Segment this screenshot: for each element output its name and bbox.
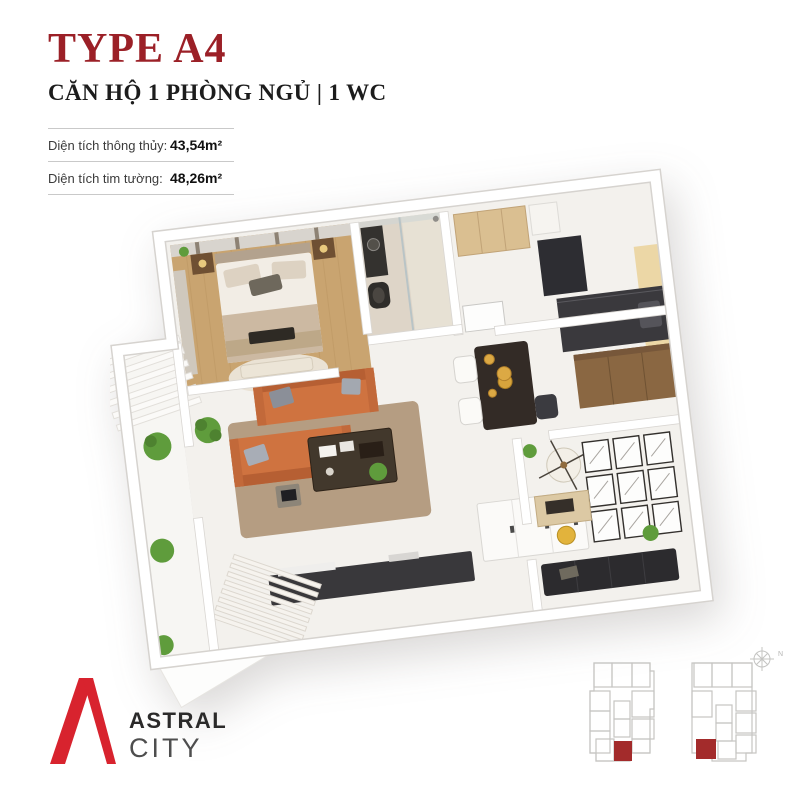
unit <box>716 723 732 741</box>
unit <box>716 705 732 723</box>
desk-chair <box>556 525 576 545</box>
unit <box>590 731 610 753</box>
compass-icon <box>748 645 776 673</box>
sofa-back <box>252 368 374 394</box>
sofa-base <box>252 368 378 427</box>
living-room <box>190 363 432 543</box>
sofa-arm <box>252 381 266 426</box>
tray <box>359 441 385 459</box>
page-header: TYPE A4 CĂN HỘ 1 PHÒNG NGỦ | 1 WC <box>48 26 387 106</box>
pendant-light <box>484 354 495 365</box>
unit <box>694 663 712 687</box>
desk <box>534 490 591 526</box>
fan-hub <box>560 461 568 469</box>
unit <box>718 741 736 759</box>
refrigerator <box>537 235 587 296</box>
logo-brand-subname: CITY <box>129 734 227 762</box>
keyplan-tower-left <box>584 657 660 773</box>
living-rug <box>227 400 432 539</box>
picture-frame-grid <box>582 432 682 542</box>
sofa-pillow <box>341 378 361 395</box>
spec-row-net-area: Diện tích thông thủy: 43,54m² <box>48 128 234 161</box>
balcony <box>110 322 329 669</box>
lamp <box>319 244 328 253</box>
fruit-bowl <box>497 374 513 390</box>
wall-slat <box>195 242 200 254</box>
sideboard-door-line <box>608 357 614 405</box>
astral-city-logo: ASTRAL CITY <box>50 678 227 764</box>
highlighted-unit-a4 <box>614 741 632 761</box>
lamp <box>198 259 207 268</box>
balcony-plant <box>142 431 173 462</box>
headboard <box>214 242 311 264</box>
bedroom-accent-wall <box>170 223 355 257</box>
vanity <box>360 225 388 277</box>
kitchen-sink <box>638 300 663 328</box>
plant <box>178 246 189 257</box>
cabinet-handle <box>545 521 550 528</box>
unit <box>736 713 756 733</box>
unit <box>632 691 654 717</box>
soundbar <box>277 562 336 577</box>
spec-row-gross-area: Diện tích tim tường: 48,26m² <box>48 161 234 195</box>
blanket <box>222 304 323 363</box>
shower-floor <box>401 212 457 336</box>
balcony-floor <box>117 344 210 663</box>
side-table <box>275 483 302 508</box>
unit <box>594 663 612 687</box>
kitchen <box>556 285 682 410</box>
pendant-light <box>488 389 497 398</box>
cabinet-handle <box>573 518 578 525</box>
toilet <box>367 281 391 309</box>
astral-logo-icon <box>50 678 116 764</box>
exterior-wall <box>110 176 707 663</box>
apartment-floor <box>159 176 707 657</box>
spec-value: 48,26m² <box>170 170 222 186</box>
media-device <box>388 551 419 562</box>
pillow <box>223 263 262 288</box>
sofa-back <box>234 461 356 487</box>
plant-leaf <box>194 418 207 431</box>
workspace <box>522 426 688 597</box>
bench-pillow <box>559 565 579 580</box>
sofa-pillow <box>269 386 295 408</box>
sofa-arm <box>341 425 356 474</box>
bench-seam <box>608 556 612 588</box>
sofa-pillow <box>243 443 269 466</box>
dining-chair-dark <box>534 393 559 420</box>
fan-blade <box>538 465 565 478</box>
wall-slat <box>235 237 240 249</box>
plant <box>522 443 538 459</box>
table-plant <box>368 462 388 482</box>
mattress <box>216 252 323 363</box>
wall <box>527 559 543 617</box>
wall <box>187 368 339 395</box>
counter-edge <box>557 289 669 303</box>
plant-leaf <box>144 435 157 448</box>
tv-wall <box>262 491 591 606</box>
spec-value: 43,54m² <box>170 137 222 153</box>
wall-slat <box>274 232 279 244</box>
sofa <box>252 368 378 427</box>
area-specs-table: Diện tích thông thủy: 43,54m² Diện tích … <box>48 128 234 195</box>
wall <box>494 305 672 336</box>
compass-north-label: N <box>778 651 783 658</box>
wall <box>512 438 531 524</box>
sofa <box>229 425 356 488</box>
entrance-hall <box>453 190 679 398</box>
shower-head <box>432 215 439 222</box>
cabinet-handle <box>510 526 515 533</box>
coffee-table <box>308 428 398 492</box>
unit <box>736 691 756 711</box>
spec-label: Diện tích tim tường: <box>48 171 170 186</box>
shoe-cabinet <box>529 202 560 235</box>
throw-blanket <box>225 330 322 358</box>
page-title: TYPE A4 <box>48 26 387 72</box>
fan-blade <box>564 464 577 491</box>
exterior-wall-edge <box>110 176 707 663</box>
kitchen-counter <box>556 285 675 352</box>
wardrobe-door-line <box>477 212 482 254</box>
cabinet-door-line <box>546 495 553 553</box>
floorplan-3d-render <box>110 163 754 728</box>
wall <box>548 414 685 440</box>
pergola-slats <box>110 335 202 431</box>
wall <box>350 222 373 334</box>
spec-label: Diện tích thông thủy: <box>48 138 170 153</box>
nightstand <box>311 237 335 260</box>
wood-plank-lines <box>185 225 352 390</box>
laptop <box>281 489 297 502</box>
bench-sofa <box>541 548 680 596</box>
logo-text: ASTRAL CITY <box>129 709 227 764</box>
bench-seam <box>574 560 578 592</box>
bed-bench <box>240 357 313 379</box>
highlighted-unit-a4 <box>696 739 716 759</box>
accent-pillow <box>248 273 283 296</box>
wall <box>439 211 463 335</box>
bed-tray <box>248 327 295 345</box>
unit <box>736 735 756 753</box>
tv-console <box>268 551 475 606</box>
fan-blade <box>563 452 590 465</box>
interior-walls <box>160 186 707 657</box>
unit <box>632 663 650 687</box>
sofa-base <box>229 425 356 488</box>
unit <box>632 719 654 739</box>
dining-chair <box>453 355 478 383</box>
wall-slat <box>314 227 319 239</box>
sideboard-door-line <box>642 353 648 401</box>
nightstand <box>190 252 214 275</box>
unit <box>614 719 630 737</box>
ceiling-fan <box>535 436 593 494</box>
wall <box>368 324 463 345</box>
unit <box>712 663 732 687</box>
desk-shelf <box>545 498 574 514</box>
unit <box>596 739 614 761</box>
cooktop-burner <box>590 312 601 323</box>
bedroom <box>170 223 373 402</box>
balcony-plant <box>153 634 175 656</box>
shower-glass <box>399 217 414 336</box>
bedroom-tv-panel <box>173 270 198 376</box>
cup <box>325 467 334 476</box>
unit <box>614 701 630 719</box>
books <box>339 441 354 453</box>
unit <box>692 691 712 717</box>
bed <box>214 242 325 380</box>
unit <box>590 711 610 731</box>
wardrobe <box>453 206 530 256</box>
bedroom-rug <box>227 349 331 397</box>
unit <box>590 691 610 711</box>
wood-sideboard <box>573 343 682 409</box>
media-cabinet <box>477 491 589 561</box>
toilet-seat <box>372 287 386 304</box>
mirror-wall <box>354 212 444 229</box>
louver-panel <box>212 554 321 648</box>
sink <box>367 238 380 251</box>
fan-blade <box>551 439 564 466</box>
balcony-plant <box>149 537 176 564</box>
bench-seam <box>642 552 646 584</box>
bedroom-wood-floor <box>170 223 372 392</box>
accent-niche <box>634 243 680 376</box>
dining-table <box>474 341 538 431</box>
logo-brand-name: ASTRAL <box>129 709 227 733</box>
sofa-arm <box>364 368 378 413</box>
fan-disc <box>545 446 583 484</box>
sofa-pillow <box>316 436 335 452</box>
sofa-arm <box>229 439 244 488</box>
books <box>319 445 337 458</box>
wall <box>172 343 194 447</box>
dining-area <box>447 296 560 433</box>
wall <box>193 517 219 656</box>
wardrobe-door-line <box>501 209 506 251</box>
plant <box>642 524 660 542</box>
plant-leaf <box>209 429 222 442</box>
page-subtitle: CĂN HỘ 1 PHÒNG NGỦ | 1 WC <box>48 80 387 106</box>
cooktop-burner <box>608 310 619 321</box>
pendant-light <box>496 366 512 382</box>
cabinet-door-line <box>512 500 519 558</box>
sideboard-top <box>573 343 676 362</box>
logo-right-stroke <box>83 678 116 764</box>
bathroom <box>354 212 458 342</box>
bathroom-floor <box>354 212 458 342</box>
console-art <box>463 301 506 332</box>
unit <box>612 663 632 687</box>
floor-plant <box>193 416 222 445</box>
pillow <box>271 260 306 280</box>
keyplan-tower-right <box>682 657 762 773</box>
unit <box>632 739 650 753</box>
dining-chair <box>458 397 483 425</box>
